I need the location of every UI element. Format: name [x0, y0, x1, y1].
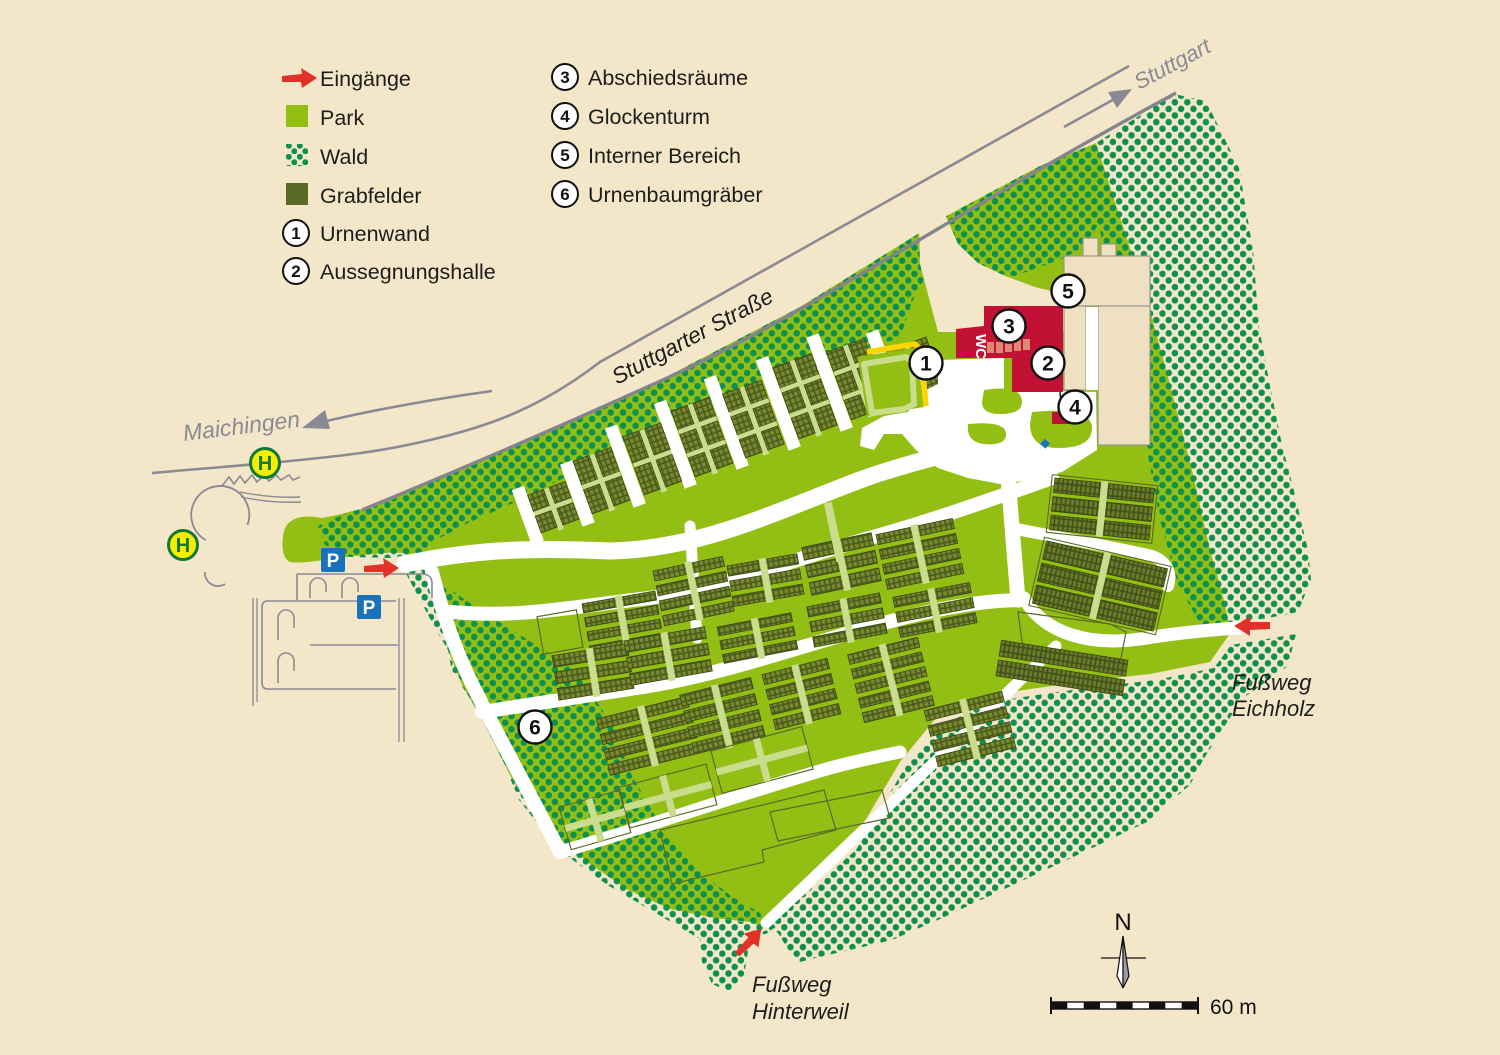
svg-text:Glockenturm: Glockenturm: [588, 105, 710, 129]
svg-text:Abschiedsräume: Abschiedsräume: [588, 66, 748, 90]
svg-text:P: P: [363, 598, 376, 619]
svg-text:N: N: [1114, 909, 1131, 936]
svg-text:Hinterweil: Hinterweil: [752, 999, 850, 1024]
svg-text:5: 5: [1062, 281, 1074, 304]
svg-text:Eingänge: Eingänge: [320, 67, 411, 91]
svg-text:6: 6: [560, 185, 569, 204]
svg-text:Urnenwand: Urnenwand: [320, 222, 430, 246]
svg-text:H: H: [258, 453, 272, 475]
svg-text:Urnenbaumgräber: Urnenbaumgräber: [588, 183, 763, 207]
svg-text:Fußweg: Fußweg: [752, 972, 832, 997]
svg-text:6: 6: [529, 717, 541, 740]
svg-text:3: 3: [1003, 316, 1015, 339]
svg-text:2: 2: [291, 262, 300, 281]
svg-text:5: 5: [560, 146, 569, 165]
svg-text:Park: Park: [320, 106, 364, 130]
svg-text:2: 2: [1042, 353, 1054, 376]
svg-text:P: P: [327, 551, 340, 572]
svg-text:Interner Bereich: Interner Bereich: [588, 144, 741, 168]
svg-text:Fußweg: Fußweg: [1232, 670, 1312, 695]
svg-text:Eichholz: Eichholz: [1232, 696, 1315, 721]
svg-text:4: 4: [1069, 397, 1081, 420]
svg-text:3: 3: [560, 68, 569, 87]
svg-text:Grabfelder: Grabfelder: [320, 184, 422, 208]
svg-text:60 m: 60 m: [1210, 996, 1257, 1019]
svg-text:WC: WC: [972, 334, 989, 359]
svg-text:1: 1: [920, 353, 932, 376]
svg-text:Wald: Wald: [320, 145, 368, 169]
svg-text:Aussegnungshalle: Aussegnungshalle: [320, 260, 496, 284]
svg-text:H: H: [176, 535, 190, 557]
svg-text:1: 1: [291, 224, 300, 243]
svg-text:4: 4: [560, 107, 570, 126]
